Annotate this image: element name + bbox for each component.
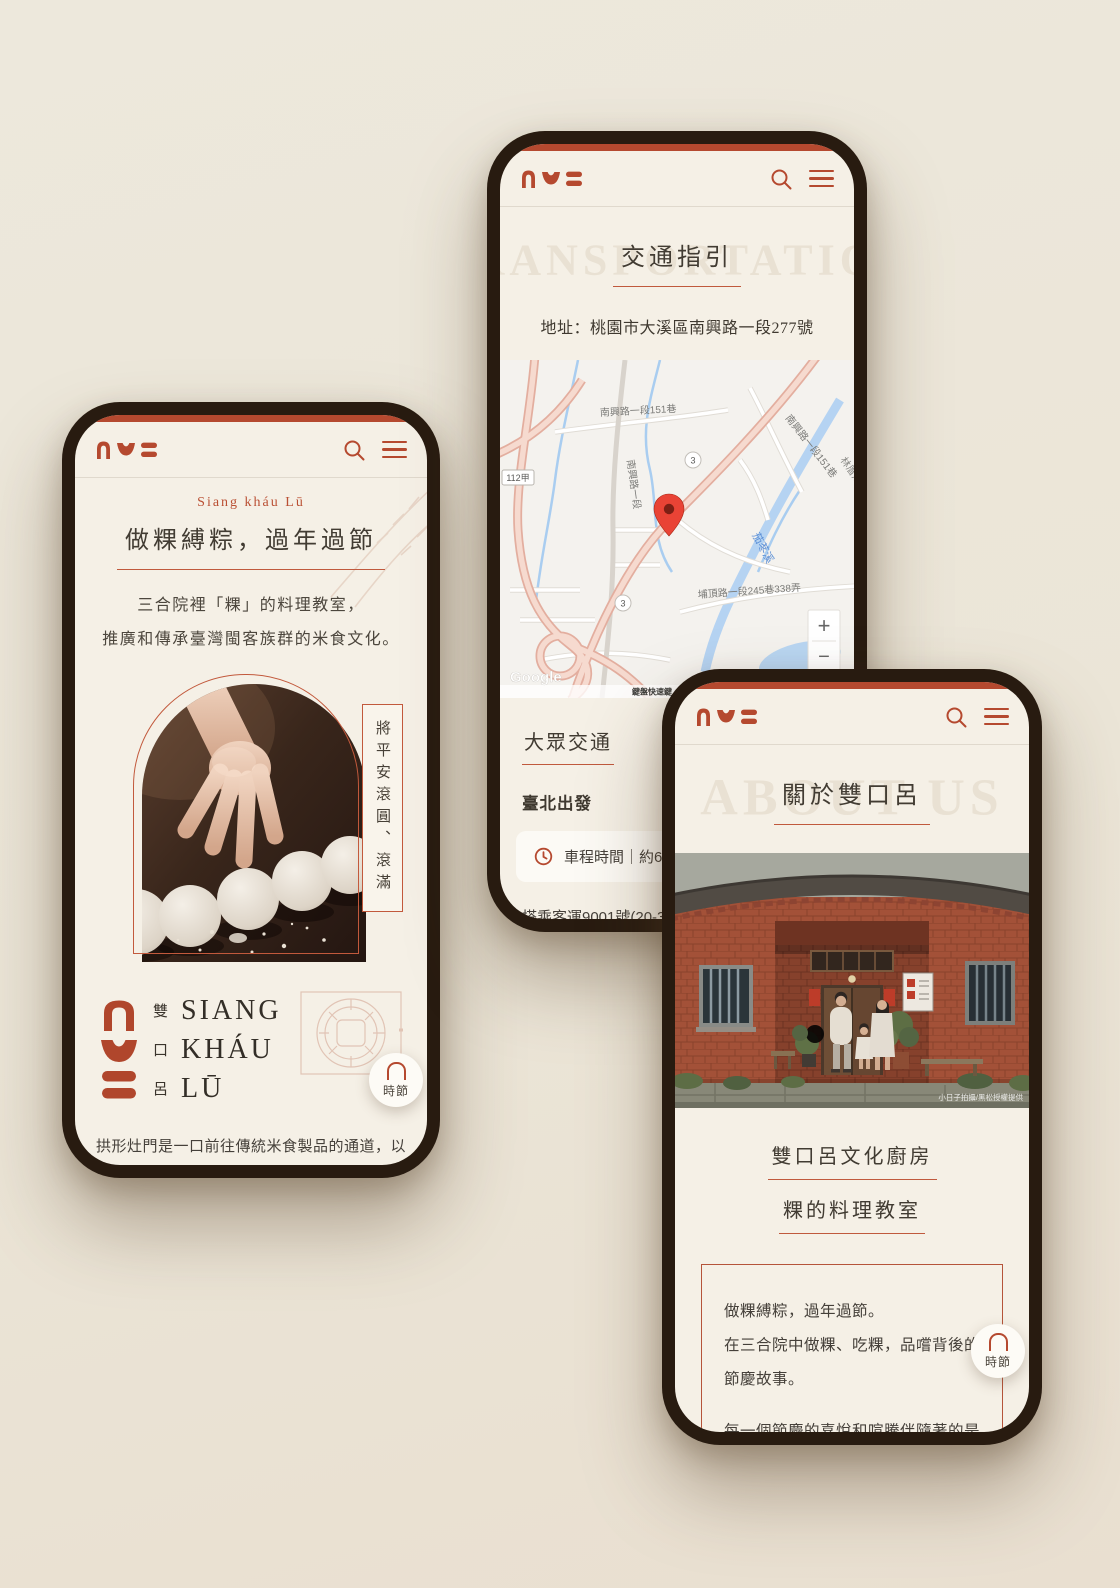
svg-text:3: 3 [620, 599, 625, 609]
svg-text:3: 3 [690, 456, 695, 466]
hero-arch-photo [142, 684, 366, 962]
google-map[interactable]: 112甲 3 3 南興路一段151巷 南興路一段151巷 南興路一段 林厝角 埔… [500, 360, 854, 698]
clock-icon [534, 847, 553, 866]
drive-time-text: 車程時間｜約60- [564, 846, 676, 867]
courtyard-house-photo: 小日子拍攝/黑松授權提供 [675, 853, 1029, 1108]
seasons-floating-button[interactable]: 時節 [369, 1053, 423, 1107]
svg-text:112甲: 112甲 [506, 473, 529, 483]
mockup-stage: Siang kháu Lū 做粿縛粽，過年過節 三合院裡「粿」的料理教室， 推廣… [0, 0, 1120, 1588]
brand-logo-icon[interactable] [95, 440, 159, 460]
arch-icon [989, 1333, 1008, 1351]
phone-3-screen: ABOUT US 關於雙口呂 [675, 682, 1029, 1432]
logo-en: KHÁU [181, 1034, 274, 1066]
search-icon[interactable] [770, 168, 792, 190]
menu-icon[interactable] [809, 170, 834, 188]
logo-zh: 呂 [153, 1078, 170, 1099]
top-accent-strip [500, 144, 854, 151]
search-icon[interactable] [343, 439, 365, 461]
brand-glyphs-icon [99, 998, 139, 1102]
eyebrow-text: Siang kháu Lū [75, 495, 427, 511]
about-heading-2: 粿的料理教室 [779, 1194, 925, 1234]
about-text-box: 做粿縛粽，過年過節。 在三合院中做粿、吃粿，品嚐背後的 節慶故事。 每一個節慶的… [701, 1264, 1003, 1432]
page-title: 關於雙口呂 [675, 775, 1029, 825]
rice-balls-photo [142, 684, 366, 962]
brand-logo-icon[interactable] [695, 707, 759, 727]
search-icon[interactable] [945, 706, 967, 728]
hero-photo-section: 將平安滾圓、滾滿 [75, 670, 427, 970]
about-heading-1: 雙口呂文化廚房 [768, 1140, 937, 1180]
google-logo: Google [510, 669, 562, 686]
menu-icon[interactable] [984, 708, 1009, 726]
site-header [75, 422, 427, 478]
about-paragraph: 每一個節慶的喜悅和喧騰伴隨著的是 每一位辛勤婦女穿梭廳堂和廚房，而 其中每一位阿… [724, 1415, 980, 1432]
intro-text: 三合院裡「粿」的料理教室， 推廣和傳承臺灣閩客族群的米食文化。 [75, 589, 427, 658]
page-title: 做粿縛粽，過年過節 [75, 520, 427, 570]
vertical-caption-tag: 將平安滾圓、滾滿 [362, 704, 403, 912]
logo-en: SIANG [181, 995, 282, 1027]
route-badge-112: 112甲 [502, 470, 534, 485]
keyboard-shortcuts-link[interactable]: 鍵盤快速鍵 [632, 687, 672, 697]
address-text: 地址：桃園市大溪區南興路一段277號 [500, 314, 854, 338]
site-header [675, 689, 1029, 745]
zoom-out-button[interactable]: − [818, 646, 830, 668]
phone-3: ABOUT US 關於雙口呂 [662, 669, 1042, 1445]
phone-1: Siang kháu Lū 做粿縛粽，過年過節 三合院裡「粿」的料理教室， 推廣… [62, 402, 440, 1178]
arch-icon [387, 1062, 406, 1080]
seasons-floating-button[interactable]: 時節 [971, 1324, 1025, 1378]
top-accent-strip [75, 415, 427, 422]
menu-icon[interactable] [382, 441, 407, 459]
logo-zh: 口 [153, 1039, 170, 1060]
zoom-in-button[interactable]: + [818, 613, 831, 638]
top-accent-strip [675, 682, 1029, 689]
logo-en: LŪ [181, 1073, 224, 1105]
about-paragraph: 做粿縛粽，過年過節。 在三合院中做粿、吃粿，品嚐背後的 節慶故事。 [724, 1295, 980, 1397]
phone-1-screen: Siang kháu Lū 做粿縛粽，過年過節 三合院裡「粿」的料理教室， 推廣… [75, 415, 427, 1165]
page-title: 交通指引 [500, 237, 854, 287]
photo-credit-caption: 小日子拍攝/黑松授權提供 [938, 1092, 1023, 1102]
about-headings: 雙口呂文化廚房 粿的料理教室 [675, 1140, 1029, 1234]
footer-description: 拱形灶門是一口前往傳統米食製品的通道，以碗 就口，品嚐先人的敬穀謝天，走讀節慶的… [75, 1130, 427, 1165]
map-zoom-controls: + − [808, 610, 840, 672]
brand-logo-icon[interactable] [520, 169, 584, 189]
site-header [500, 151, 854, 207]
logo-zh: 雙 [153, 1000, 170, 1021]
